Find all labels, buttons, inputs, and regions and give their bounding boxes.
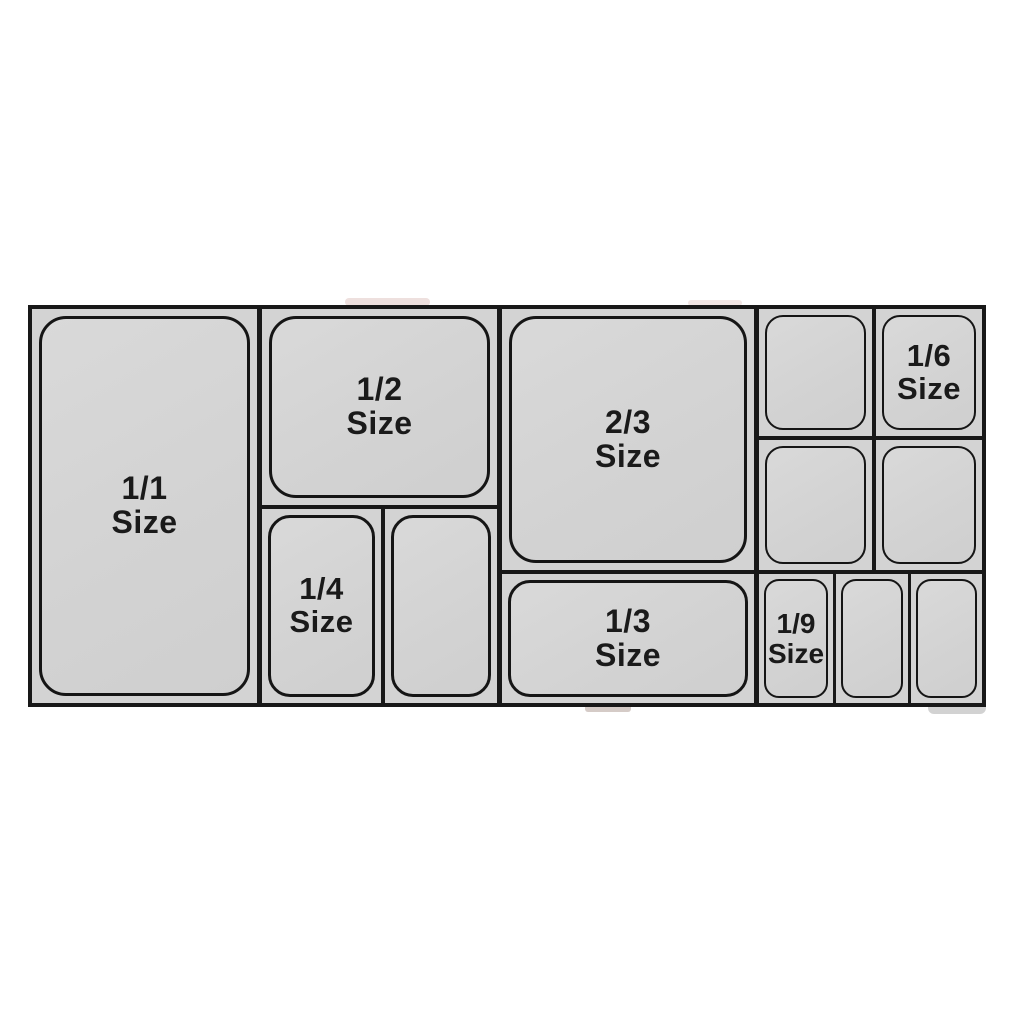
pan-1-6-unlabeled-2	[765, 446, 866, 564]
pan-label-1-1: 1/1 Size	[111, 472, 177, 539]
pan-box-1-1: 1/1 Size	[32, 309, 257, 703]
pan-size-chart: 1/1 Size 1/2 Size 1/4 Size	[0, 0, 1024, 1024]
pan-1-6-unlabeled-3	[882, 446, 976, 564]
pan-box-1-9-unlabeled-1	[836, 574, 908, 703]
pan-box-1-6-unlabeled-2	[759, 440, 872, 570]
pan-1-9-unlabeled-2	[916, 579, 977, 698]
pan-1-4-unlabeled	[391, 515, 491, 697]
pan-1-9: 1/9 Size	[764, 579, 828, 698]
pan-box-1-4: 1/4 Size	[262, 509, 381, 703]
pan-label-2-3: 2/3 Size	[595, 406, 661, 473]
pan-label-1-6: 1/6 Size	[897, 340, 961, 405]
pan-box-1-6: 1/6 Size	[876, 309, 982, 436]
pan-2-3: 2/3 Size	[509, 316, 747, 563]
pan-label-1-9: 1/9 Size	[768, 609, 824, 668]
pan-box-2-3: 2/3 Size	[502, 309, 754, 570]
pan-label-1-2: 1/2 Size	[346, 373, 412, 440]
pan-box-1-6-unlabeled-3	[876, 440, 982, 570]
pan-1-3: 1/3 Size	[508, 580, 748, 697]
pan-box-1-2: 1/2 Size	[262, 309, 497, 505]
pan-label-1-4: 1/4 Size	[289, 573, 353, 638]
pan-box-1-4-unlabeled	[385, 509, 497, 703]
pan-1-9-unlabeled-1	[841, 579, 903, 698]
pan-box-1-3: 1/3 Size	[502, 574, 754, 703]
gastronorm-size-grid: 1/1 Size 1/2 Size 1/4 Size	[28, 305, 986, 707]
pan-1-6: 1/6 Size	[882, 315, 976, 430]
pan-box-1-9: 1/9 Size	[759, 574, 833, 703]
pan-1-4: 1/4 Size	[268, 515, 375, 697]
pan-1-1: 1/1 Size	[39, 316, 250, 696]
pan-1-6-unlabeled-1	[765, 315, 866, 430]
pan-label-1-3: 1/3 Size	[595, 605, 661, 672]
pan-box-1-6-unlabeled-1	[759, 309, 872, 436]
pan-1-2: 1/2 Size	[269, 316, 490, 498]
pan-box-1-9-unlabeled-2	[911, 574, 982, 703]
